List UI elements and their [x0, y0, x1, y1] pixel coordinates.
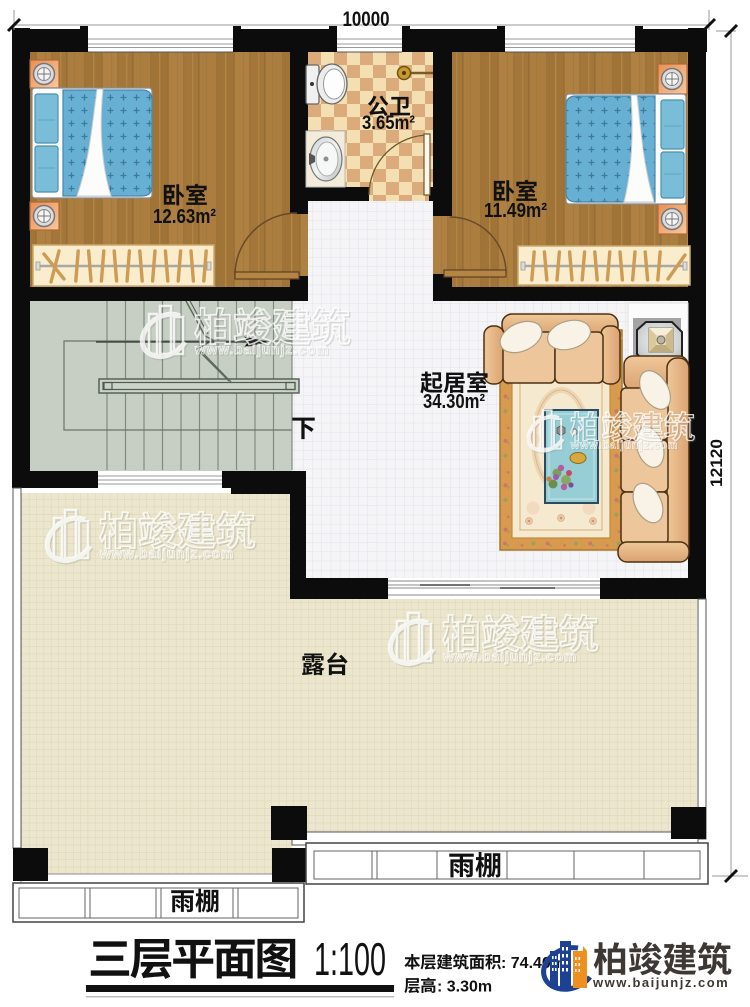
svg-text:3.65m²: 3.65m²: [362, 113, 415, 134]
svg-text:1:100: 1:100: [314, 933, 386, 985]
svg-text:www.baijunjz.com: www.baijunjz.com: [99, 546, 234, 561]
svg-text:34.30m²: 34.30m²: [423, 391, 485, 413]
svg-text:11.49m²: 11.49m²: [484, 200, 547, 222]
svg-text:www.baijunjz.com: www.baijunjz.com: [570, 440, 678, 452]
svg-text:www.baijunjz.com: www.baijunjz.com: [442, 649, 577, 664]
svg-text:www.baijunjz.com: www.baijunjz.com: [592, 975, 729, 990]
svg-text:www.baijunjz.com: www.baijunjz.com: [194, 342, 329, 357]
svg-text:12.63m²: 12.63m²: [153, 206, 216, 228]
svg-text:: 3.30m: : 3.30m: [437, 979, 492, 996]
svg-text:: 74.40m²: : 74.40m²: [501, 955, 570, 972]
svg-text:10000: 10000: [343, 8, 390, 31]
svg-text:12120: 12120: [707, 439, 726, 487]
